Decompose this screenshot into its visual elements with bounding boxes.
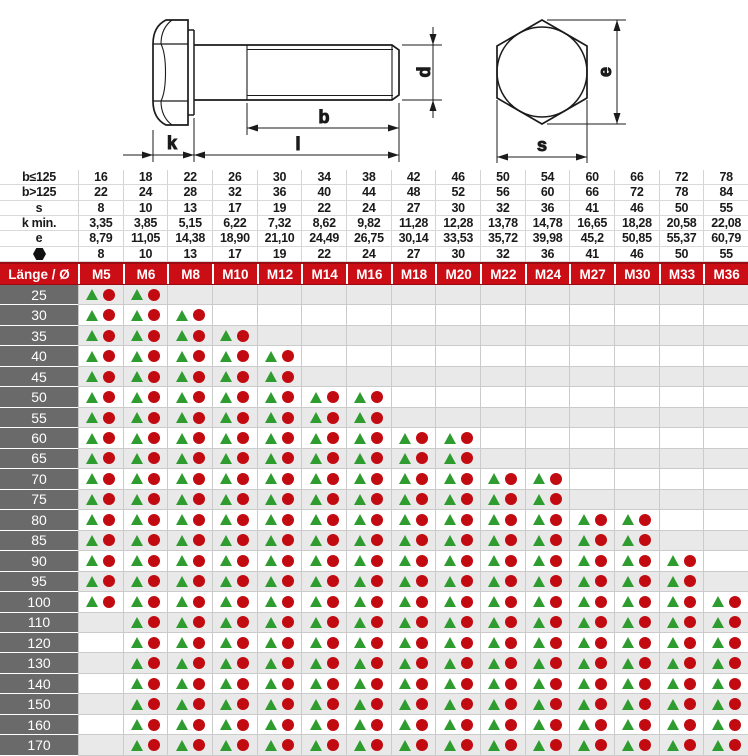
- availability-cell: [123, 387, 168, 407]
- triangle-icon: [667, 555, 679, 566]
- column-header-m30: M30: [614, 264, 659, 284]
- circle-icon: [729, 698, 741, 710]
- availability-cell: [212, 715, 257, 735]
- dim-s: s: [497, 100, 587, 163]
- availability-cell: [703, 408, 748, 428]
- availability-cell: [569, 510, 614, 530]
- triangle-icon: [86, 453, 98, 464]
- spec-row: b≤125161822263034384246505460667278: [0, 170, 748, 185]
- circle-icon: [371, 391, 383, 403]
- availability-cell: [78, 490, 123, 510]
- length-label: 65: [0, 449, 78, 469]
- circle-icon: [327, 473, 339, 485]
- availability-cell: [569, 346, 614, 366]
- availability-cell: [525, 572, 570, 592]
- spec-value: 12,28: [435, 216, 480, 230]
- availability-cell: [614, 674, 659, 694]
- triangle-icon: [176, 740, 188, 751]
- triangle-icon: [533, 637, 545, 648]
- circle-icon: [103, 289, 115, 301]
- triangle-icon: [131, 371, 143, 382]
- availability-cell: [659, 633, 704, 653]
- spec-row: e8,7911,0514,3818,9021,1024,4926,7530,14…: [0, 231, 748, 246]
- circle-icon: [729, 657, 741, 669]
- availability-cell: [212, 653, 257, 673]
- circle-icon: [193, 698, 205, 710]
- triangle-icon: [176, 617, 188, 628]
- length-label: 130: [0, 653, 78, 673]
- availability-cell: [301, 367, 346, 387]
- circle-icon: [416, 698, 428, 710]
- length-label: 90: [0, 551, 78, 571]
- availability-cell: [614, 305, 659, 325]
- spec-value: 22: [167, 170, 212, 184]
- availability-cell: [391, 735, 436, 755]
- triangle-icon: [220, 658, 232, 669]
- triangle-icon: [176, 330, 188, 341]
- triangle-icon: [176, 596, 188, 607]
- availability-cell: [480, 551, 525, 571]
- hex-top-view: [497, 20, 587, 124]
- circle-icon: [550, 473, 562, 485]
- triangle-icon: [533, 514, 545, 525]
- triangle-icon: [86, 289, 98, 300]
- availability-cell: [659, 572, 704, 592]
- availability-cell: [659, 613, 704, 633]
- circle-icon: [237, 391, 249, 403]
- triangle-icon: [131, 351, 143, 362]
- circle-icon: [461, 514, 473, 526]
- spec-value: 27: [391, 201, 436, 215]
- availability-cell: [346, 592, 391, 612]
- triangle-icon: [220, 617, 232, 628]
- spec-value: 14,38: [167, 231, 212, 245]
- availability-cell: [78, 449, 123, 469]
- circle-icon: [639, 616, 651, 628]
- hexagon-icon: [33, 248, 46, 260]
- triangle-icon: [86, 535, 98, 546]
- circle-icon: [371, 514, 383, 526]
- availability-cell: [703, 613, 748, 633]
- availability-cell: [480, 490, 525, 510]
- circle-icon: [416, 432, 428, 444]
- spec-row: 81013171922242730323641465055: [0, 247, 748, 262]
- column-header-m10: M10: [212, 264, 257, 284]
- triangle-icon: [86, 494, 98, 505]
- availability-cell: [78, 367, 123, 387]
- circle-icon: [371, 452, 383, 464]
- triangle-icon: [488, 699, 500, 710]
- availability-cell: [391, 285, 436, 305]
- triangle-icon: [86, 596, 98, 607]
- triangle-icon: [578, 555, 590, 566]
- bolt-side-view: [153, 20, 399, 125]
- availability-cell: [569, 428, 614, 448]
- matrix-row: 30: [0, 305, 748, 325]
- circle-icon: [148, 739, 160, 751]
- triangle-icon: [667, 617, 679, 628]
- availability-cell: [78, 326, 123, 346]
- spec-value: 55: [703, 201, 748, 215]
- availability-cell: [703, 510, 748, 530]
- circle-icon: [237, 371, 249, 383]
- circle-icon: [237, 412, 249, 424]
- circle-icon: [461, 719, 473, 731]
- circle-icon: [103, 596, 115, 608]
- availability-cell: [212, 449, 257, 469]
- circle-icon: [684, 678, 696, 690]
- triangle-icon: [265, 535, 277, 546]
- availability-cell: [123, 510, 168, 530]
- circle-icon: [595, 657, 607, 669]
- triangle-icon: [176, 392, 188, 403]
- circle-icon: [282, 596, 294, 608]
- triangle-icon: [86, 433, 98, 444]
- availability-cell: [167, 694, 212, 714]
- triangle-icon: [131, 555, 143, 566]
- circle-icon: [193, 391, 205, 403]
- circle-icon: [103, 452, 115, 464]
- circle-icon: [595, 678, 607, 690]
- availability-cell: [78, 674, 123, 694]
- triangle-icon: [131, 678, 143, 689]
- matrix-corner-header: Länge / Ø: [0, 264, 78, 284]
- circle-icon: [505, 493, 517, 505]
- spec-value: 45,2: [569, 231, 614, 245]
- circle-icon: [282, 616, 294, 628]
- matrix-row: 40: [0, 346, 748, 366]
- triangle-icon: [533, 658, 545, 669]
- spec-value: 3,35: [78, 216, 123, 230]
- availability-cell: [212, 469, 257, 489]
- availability-cell: [123, 551, 168, 571]
- availability-cell: [212, 592, 257, 612]
- triangle-icon: [399, 494, 411, 505]
- spec-value: 8: [78, 247, 123, 261]
- circle-icon: [237, 534, 249, 546]
- triangle-icon: [310, 555, 322, 566]
- matrix-row: 160: [0, 715, 748, 735]
- length-label: 140: [0, 674, 78, 694]
- spec-value: 8,79: [78, 231, 123, 245]
- availability-cell: [435, 572, 480, 592]
- availability-cell: [525, 633, 570, 653]
- matrix-row: 65: [0, 449, 748, 469]
- circle-icon: [193, 514, 205, 526]
- availability-cell: [703, 592, 748, 612]
- availability-cell: [212, 510, 257, 530]
- circle-icon: [550, 739, 562, 751]
- circle-icon: [639, 657, 651, 669]
- circle-icon: [282, 555, 294, 567]
- availability-cell: [569, 367, 614, 387]
- circle-icon: [505, 657, 517, 669]
- availability-cell: [525, 346, 570, 366]
- length-label: 75: [0, 490, 78, 510]
- triangle-icon: [354, 535, 366, 546]
- triangle-icon: [176, 576, 188, 587]
- triangle-icon: [578, 658, 590, 669]
- availability-cell: [301, 490, 346, 510]
- availability-cell: [480, 715, 525, 735]
- availability-cell: [167, 735, 212, 755]
- availability-cell: [123, 305, 168, 325]
- spec-value: 13,78: [480, 216, 525, 230]
- availability-cell: [301, 285, 346, 305]
- triangle-icon: [176, 494, 188, 505]
- circle-icon: [103, 575, 115, 587]
- triangle-icon: [444, 617, 456, 628]
- circle-icon: [103, 514, 115, 526]
- availability-cell: [301, 387, 346, 407]
- triangle-icon: [220, 392, 232, 403]
- circle-icon: [282, 493, 294, 505]
- spec-value: 9,82: [346, 216, 391, 230]
- availability-cell: [480, 674, 525, 694]
- spec-value: 55,37: [659, 231, 704, 245]
- circle-icon: [282, 412, 294, 424]
- circle-icon: [416, 555, 428, 567]
- length-label: 85: [0, 531, 78, 551]
- circle-icon: [595, 719, 607, 731]
- availability-cell: [391, 674, 436, 694]
- triangle-icon: [310, 740, 322, 751]
- availability-cell: [703, 551, 748, 571]
- availability-cell: [435, 694, 480, 714]
- triangle-icon: [176, 699, 188, 710]
- triangle-icon: [444, 678, 456, 689]
- circle-icon: [103, 432, 115, 444]
- availability-cell: [301, 326, 346, 346]
- circle-icon: [416, 739, 428, 751]
- matrix-row: 85: [0, 531, 748, 551]
- availability-cell: [703, 326, 748, 346]
- circle-icon: [193, 575, 205, 587]
- circle-icon: [550, 575, 562, 587]
- triangle-icon: [399, 453, 411, 464]
- spec-value: 56: [480, 185, 525, 199]
- circle-icon: [282, 637, 294, 649]
- triangle-icon: [399, 514, 411, 525]
- circle-icon: [282, 371, 294, 383]
- availability-cell: [346, 449, 391, 469]
- circle-icon: [193, 452, 205, 464]
- circle-icon: [237, 330, 249, 342]
- triangle-icon: [399, 699, 411, 710]
- column-header-m16: M16: [346, 264, 391, 284]
- circle-icon: [327, 678, 339, 690]
- availability-cell: [78, 592, 123, 612]
- spec-value: 20,58: [659, 216, 704, 230]
- spec-value: 50: [480, 170, 525, 184]
- availability-cell: [123, 346, 168, 366]
- circle-icon: [729, 719, 741, 731]
- availability-cell: [525, 367, 570, 387]
- spec-value: 22: [78, 185, 123, 199]
- circle-icon: [148, 473, 160, 485]
- availability-cell: [480, 633, 525, 653]
- circle-icon: [148, 371, 160, 383]
- availability-cell: [614, 367, 659, 387]
- circle-icon: [193, 330, 205, 342]
- availability-cell: [614, 428, 659, 448]
- availability-cell: [569, 285, 614, 305]
- availability-cell: [123, 285, 168, 305]
- circle-icon: [461, 534, 473, 546]
- triangle-icon: [712, 596, 724, 607]
- availability-cell: [78, 735, 123, 755]
- triangle-icon: [444, 453, 456, 464]
- triangle-icon: [220, 740, 232, 751]
- triangle-icon: [667, 658, 679, 669]
- circle-icon: [148, 514, 160, 526]
- matrix-row: 25: [0, 285, 748, 305]
- circle-icon: [148, 350, 160, 362]
- spec-value: 55: [703, 247, 748, 261]
- availability-cell: [301, 674, 346, 694]
- circle-icon: [193, 371, 205, 383]
- spec-value: 42: [391, 170, 436, 184]
- availability-cell: [525, 408, 570, 428]
- circle-icon: [505, 678, 517, 690]
- triangle-icon: [488, 576, 500, 587]
- circle-icon: [282, 719, 294, 731]
- availability-cell: [167, 285, 212, 305]
- availability-cell: [301, 305, 346, 325]
- availability-cell: [525, 735, 570, 755]
- availability-cell: [123, 653, 168, 673]
- triangle-icon: [220, 555, 232, 566]
- spec-value: 17: [212, 201, 257, 215]
- availability-cell: [391, 531, 436, 551]
- triangle-icon: [131, 719, 143, 730]
- availability-cell: [257, 592, 302, 612]
- triangle-icon: [265, 453, 277, 464]
- triangle-icon: [622, 555, 634, 566]
- availability-cell: [123, 715, 168, 735]
- availability-cell: [212, 674, 257, 694]
- availability-cell: [659, 326, 704, 346]
- spec-value: 13: [167, 247, 212, 261]
- availability-cell: [480, 653, 525, 673]
- triangle-icon: [131, 617, 143, 628]
- circle-icon: [595, 596, 607, 608]
- column-header-m18: M18: [391, 264, 436, 284]
- availability-cell: [525, 694, 570, 714]
- triangle-icon: [265, 473, 277, 484]
- spec-row-label: s: [0, 201, 78, 215]
- availability-cell: [480, 387, 525, 407]
- triangle-icon: [310, 617, 322, 628]
- triangle-icon: [220, 453, 232, 464]
- availability-cell: [480, 285, 525, 305]
- triangle-icon: [265, 678, 277, 689]
- availability-cell: [659, 694, 704, 714]
- triangle-icon: [176, 658, 188, 669]
- circle-icon: [148, 555, 160, 567]
- triangle-icon: [622, 637, 634, 648]
- matrix-row: 50: [0, 387, 748, 407]
- availability-cell: [480, 367, 525, 387]
- triangle-icon: [131, 699, 143, 710]
- triangle-icon: [578, 596, 590, 607]
- triangle-icon: [310, 473, 322, 484]
- availability-cell: [167, 531, 212, 551]
- length-label: 30: [0, 305, 78, 325]
- circle-icon: [327, 596, 339, 608]
- length-label: 70: [0, 469, 78, 489]
- triangle-icon: [354, 699, 366, 710]
- availability-cell: [659, 367, 704, 387]
- triangle-icon: [354, 392, 366, 403]
- availability-cell: [346, 326, 391, 346]
- availability-cell: [301, 653, 346, 673]
- triangle-icon: [533, 678, 545, 689]
- availability-cell: [167, 613, 212, 633]
- circle-icon: [550, 514, 562, 526]
- triangle-icon: [176, 310, 188, 321]
- circle-icon: [148, 657, 160, 669]
- spec-value: 8: [78, 201, 123, 215]
- dim-label-e: e: [595, 67, 615, 77]
- triangle-icon: [488, 494, 500, 505]
- availability-cell: [78, 305, 123, 325]
- triangle-icon: [444, 535, 456, 546]
- spec-value: 48: [391, 185, 436, 199]
- circle-icon: [148, 289, 160, 301]
- circle-icon: [461, 739, 473, 751]
- dim-label-l: l: [295, 134, 300, 154]
- circle-icon: [148, 698, 160, 710]
- availability-cell: [123, 674, 168, 694]
- circle-icon: [237, 452, 249, 464]
- circle-icon: [461, 616, 473, 628]
- availability-cell: [78, 633, 123, 653]
- triangle-icon: [131, 453, 143, 464]
- availability-cell: [212, 367, 257, 387]
- availability-cell: [569, 613, 614, 633]
- length-label: 35: [0, 326, 78, 346]
- triangle-icon: [667, 576, 679, 587]
- triangle-icon: [220, 494, 232, 505]
- circle-icon: [103, 555, 115, 567]
- spec-value: 35,72: [480, 231, 525, 245]
- triangle-icon: [176, 351, 188, 362]
- spec-value: 60,79: [703, 231, 748, 245]
- availability-cell: [703, 285, 748, 305]
- triangle-icon: [488, 473, 500, 484]
- availability-cell: [480, 531, 525, 551]
- circle-icon: [237, 575, 249, 587]
- triangle-icon: [399, 678, 411, 689]
- availability-cell: [167, 408, 212, 428]
- availability-cell: [257, 326, 302, 346]
- availability-cell: [525, 551, 570, 571]
- triangle-icon: [310, 576, 322, 587]
- availability-cell: [78, 715, 123, 735]
- circle-icon: [103, 350, 115, 362]
- column-header-m33: M33: [659, 264, 704, 284]
- circle-icon: [505, 616, 517, 628]
- spec-value: 21,10: [257, 231, 302, 245]
- availability-cell: [480, 735, 525, 755]
- spec-value: 19: [257, 247, 302, 261]
- availability-cell: [703, 469, 748, 489]
- availability-cell: [78, 387, 123, 407]
- availability-cell: [391, 367, 436, 387]
- circle-icon: [729, 739, 741, 751]
- circle-icon: [371, 616, 383, 628]
